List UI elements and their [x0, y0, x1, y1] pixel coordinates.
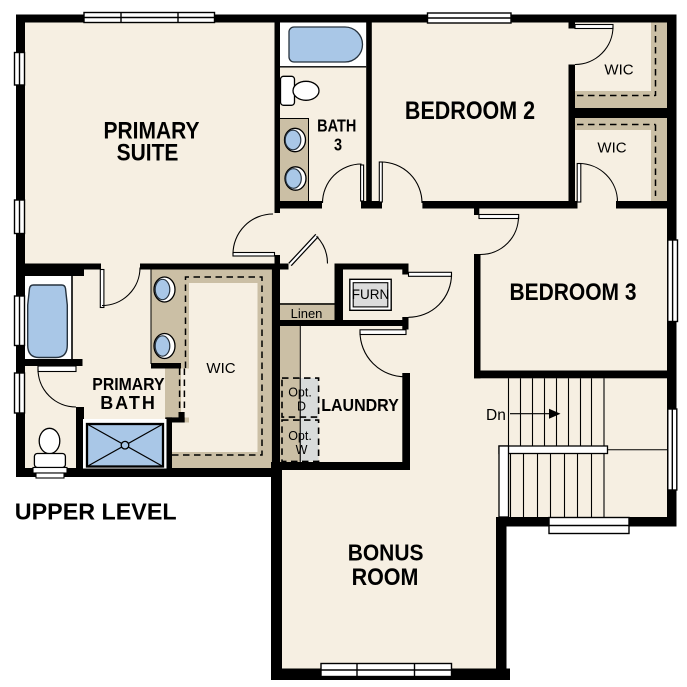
svg-text:Opt.: Opt. — [288, 385, 312, 399]
svg-text:BONUS: BONUS — [348, 540, 424, 566]
svg-text:WIC: WIC — [206, 360, 235, 377]
svg-text:Linen: Linen — [291, 306, 323, 321]
svg-text:3: 3 — [334, 137, 342, 155]
svg-text:UPPER LEVEL: UPPER LEVEL — [15, 499, 177, 525]
svg-text:BEDROOM 3: BEDROOM 3 — [509, 279, 636, 306]
svg-text:FURN: FURN — [352, 287, 390, 302]
svg-text:LAUNDRY: LAUNDRY — [321, 395, 399, 415]
svg-text:ROOM: ROOM — [352, 564, 419, 590]
svg-text:Opt.: Opt. — [288, 429, 312, 443]
svg-text:WIC: WIC — [597, 140, 626, 157]
svg-text:BEDROOM 2: BEDROOM 2 — [405, 97, 535, 125]
svg-text:BATH: BATH — [317, 118, 356, 136]
svg-text:SUITE: SUITE — [117, 139, 179, 166]
svg-text:Dn: Dn — [486, 407, 506, 424]
svg-text:BATH: BATH — [100, 392, 157, 414]
svg-text:D: D — [297, 400, 306, 414]
svg-text:W: W — [296, 443, 308, 457]
svg-text:WIC: WIC — [604, 62, 633, 79]
